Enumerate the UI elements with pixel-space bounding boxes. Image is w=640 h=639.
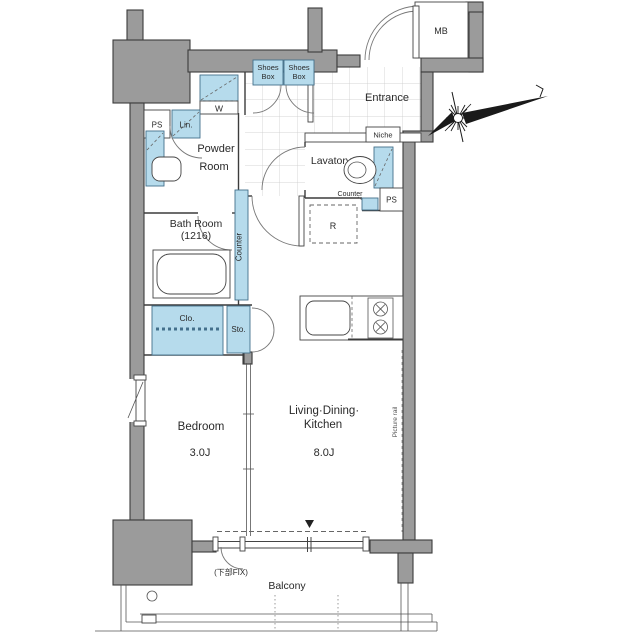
balcony: [95, 583, 437, 631]
wall-entrance-left: [337, 55, 360, 67]
wall-bottom-east-stub: [398, 553, 413, 583]
refrigerator-label: R: [330, 221, 337, 231]
powder-room-label2: Room: [199, 161, 228, 173]
balcony-label: Balcony: [268, 580, 306, 592]
wall-top-stub2: [308, 8, 322, 52]
lower-fix-window-label: (下部FIX): [214, 567, 248, 577]
shoes-box-2-label: Shoes: [288, 63, 310, 72]
closet-label: Clo.: [179, 313, 194, 323]
ps-right-label: PS: [386, 196, 397, 205]
wall-top-stub: [127, 10, 143, 42]
bathtub-inner: [157, 254, 226, 294]
wall-right-main: [403, 142, 415, 540]
bath-room-label2: (1216): [181, 230, 211, 242]
wall-left-main: [130, 103, 144, 520]
bedroom-area-label: 3.0J: [190, 447, 211, 459]
wall-sto-stub: [244, 352, 252, 364]
picture-rail-label: Picture rail: [392, 406, 399, 437]
balcony-outlet: [142, 615, 156, 623]
entrance-door-leaf: [413, 6, 419, 58]
balcony-drain: [147, 591, 157, 601]
window-marker: [305, 520, 314, 528]
bath-room: Bath Room (1216): [153, 216, 232, 298]
kitchen-sink: [306, 301, 350, 335]
linen-label: Lin.: [180, 121, 193, 130]
mb-label: MB: [434, 26, 448, 36]
compass-north-indicator: [428, 85, 548, 142]
entrance-label: Entrance: [365, 92, 409, 104]
ldk-area-label: 8.0J: [314, 447, 335, 459]
bedroom-ldk-partition: [243, 363, 254, 536]
washbasin: [152, 157, 181, 181]
ldk-label: Living·Dining·: [289, 405, 359, 417]
entrance-door: [365, 6, 419, 60]
ps-left-label: PS: [152, 121, 163, 130]
ldk-entry-door: [252, 196, 304, 246]
ldk-door-leaf: [299, 196, 304, 246]
ldk-label2: Kitchen: [304, 419, 342, 431]
toilet-bowl: [344, 157, 376, 184]
wall-bottomleft-block: [113, 520, 192, 585]
floor-plan-drawing: MB Shoes Box Shoes Box: [0, 0, 640, 639]
bedroom-side-window: [128, 375, 146, 426]
shoes-box-1-label: Shoes: [257, 63, 279, 72]
powder-room-label: Powder: [197, 143, 235, 155]
bedroom-label: Bedroom: [178, 421, 225, 433]
niche-label: Niche: [373, 131, 392, 140]
floor-plan-page: MB Shoes Box Shoes Box: [0, 0, 640, 639]
bath-room-label: Bath Room: [170, 218, 223, 230]
shoes-box-2-label2: Box: [293, 72, 306, 81]
toilet-tank: [374, 147, 393, 188]
w-closet-label: W: [215, 104, 223, 114]
wall-bottom-east-bar: [370, 540, 432, 553]
w-closet: W: [200, 75, 238, 114]
storage-label: Sto.: [231, 325, 245, 334]
south-window-assembly: (下部FIX): [213, 520, 369, 577]
picture-rail: Picture rail: [392, 350, 402, 532]
shoes-box-1-label2: Box: [262, 72, 275, 81]
closet-storage: Clo. Sto.: [152, 306, 274, 355]
wall-entrance-north-east: [421, 58, 483, 72]
lavatory-counter: [362, 198, 378, 210]
lavatory-counter-label: Counter: [338, 191, 364, 198]
wall-topleft-block: [113, 40, 190, 103]
kitchen-counter-label: Counter: [235, 232, 244, 261]
wall-entrance-lavatory: [305, 133, 421, 142]
kitchen: [300, 296, 403, 340]
wall-bottom-stub: [192, 541, 216, 552]
wall-entrance-right: [421, 72, 433, 133]
